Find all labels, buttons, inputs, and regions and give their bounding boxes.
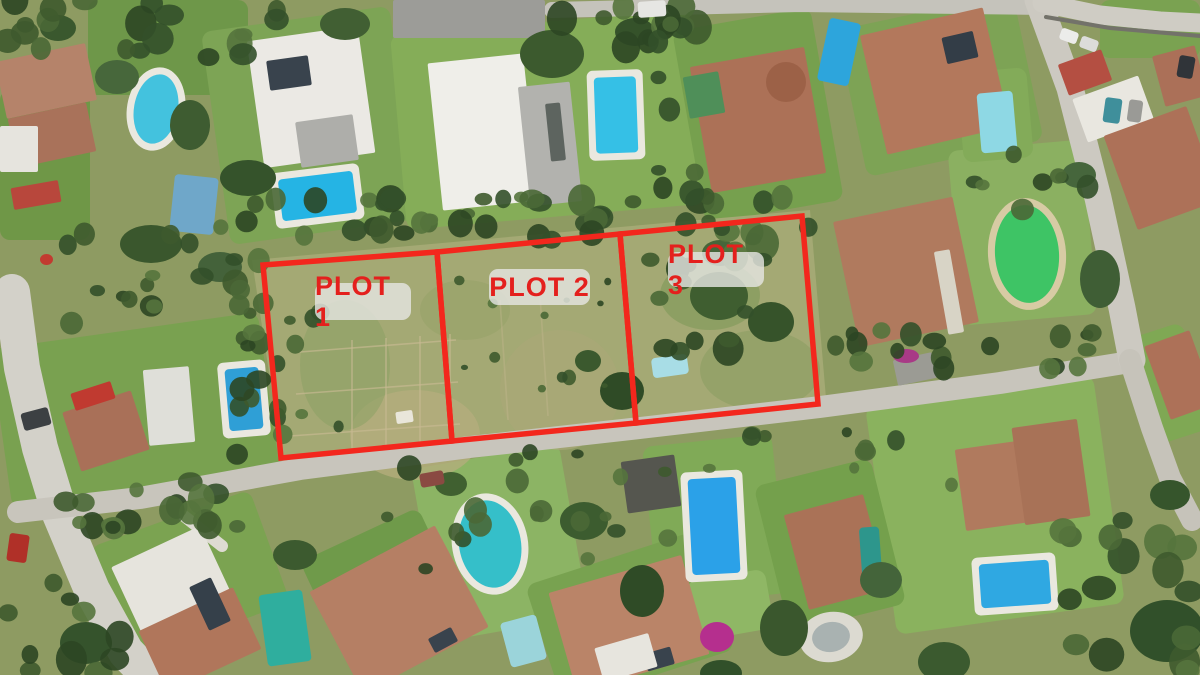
shrub <box>579 220 604 246</box>
shrub <box>234 28 252 41</box>
shrub <box>295 409 308 419</box>
shrub <box>1082 324 1101 342</box>
car <box>1102 97 1122 124</box>
shrub <box>264 9 289 30</box>
shrub <box>461 365 468 370</box>
shrub <box>360 192 378 207</box>
shrub <box>771 185 792 210</box>
shrub <box>161 225 180 244</box>
shrub <box>72 602 96 622</box>
shrub <box>381 512 393 523</box>
shrub <box>604 278 611 286</box>
tree <box>760 600 808 656</box>
villa-roof <box>428 53 539 210</box>
shrub <box>538 385 546 393</box>
villa-roof <box>295 114 359 168</box>
shrub <box>31 37 51 60</box>
tree <box>700 622 734 652</box>
car <box>6 533 30 564</box>
shrub <box>247 195 264 213</box>
shrub <box>1006 146 1022 163</box>
shrub <box>1063 634 1089 655</box>
shrub <box>229 520 245 533</box>
shrub <box>266 188 286 211</box>
shrub <box>1113 512 1133 529</box>
shrub <box>1172 625 1200 650</box>
shrub <box>117 39 135 59</box>
shrub <box>612 31 640 63</box>
swimming-pool <box>594 76 639 153</box>
shrub <box>650 291 668 306</box>
shrub <box>464 497 487 524</box>
shrub <box>679 180 704 206</box>
shrub <box>1033 173 1053 190</box>
shrub <box>887 430 905 450</box>
shrub <box>146 299 162 313</box>
tree <box>1150 480 1190 510</box>
shrub <box>703 464 716 473</box>
scrub-patch <box>420 280 510 340</box>
shrub <box>190 268 213 285</box>
shrub <box>625 195 642 208</box>
shrub <box>333 421 343 433</box>
shrub <box>849 351 873 371</box>
shrub <box>488 299 498 309</box>
shrub <box>607 524 626 538</box>
shrub <box>679 258 696 273</box>
shrub <box>142 23 174 55</box>
shrub <box>100 648 129 671</box>
shrub <box>580 552 594 565</box>
shrub <box>658 467 672 477</box>
shrub <box>22 645 39 664</box>
shrub <box>933 356 954 381</box>
swimming-pool <box>976 91 1017 154</box>
shrub <box>90 285 105 296</box>
tree <box>1080 250 1120 308</box>
shrub <box>225 253 243 266</box>
shrub <box>722 241 748 271</box>
shrub <box>475 193 493 206</box>
shrub <box>662 17 678 32</box>
satellite-aerial-view: PLOT 1PLOT 2PLOT 3 <box>0 0 1200 675</box>
tree <box>600 372 644 410</box>
shrub <box>475 214 498 238</box>
shrub <box>105 521 120 534</box>
shrub <box>890 343 904 359</box>
shrub <box>1050 168 1067 183</box>
shrub <box>1050 324 1071 348</box>
villa-roof <box>266 55 312 91</box>
shrub <box>641 253 659 267</box>
shrub <box>418 563 433 574</box>
shrub <box>1011 199 1034 221</box>
tree <box>220 160 276 196</box>
shrub <box>17 17 35 33</box>
shrub <box>753 190 774 213</box>
shrub <box>145 270 160 281</box>
shrub <box>72 516 86 529</box>
shrub <box>44 574 62 592</box>
shrub <box>495 190 511 208</box>
shrub <box>229 377 254 401</box>
tree <box>170 100 210 150</box>
swimming-pool <box>688 477 741 575</box>
villa-roof <box>621 454 682 513</box>
tree <box>520 30 584 78</box>
shrub <box>595 10 612 25</box>
tree <box>748 302 794 342</box>
shrub <box>59 234 77 255</box>
shrub <box>1039 358 1060 379</box>
shrub <box>369 215 393 243</box>
villa-roof <box>1012 419 1091 525</box>
shrub <box>648 30 668 54</box>
shrub <box>159 496 185 525</box>
shrub <box>506 468 529 493</box>
shrub <box>448 210 473 238</box>
shrub <box>571 511 590 532</box>
shrub <box>1099 525 1123 551</box>
shrub <box>540 312 548 319</box>
shrub <box>74 223 95 246</box>
shrub <box>651 165 666 176</box>
shrub <box>599 512 611 522</box>
shrub <box>342 219 367 241</box>
shrub <box>380 188 406 209</box>
shrub <box>1078 343 1097 356</box>
villa-roof <box>0 126 38 172</box>
villa-roof <box>690 47 826 193</box>
shrub <box>121 291 138 308</box>
shrub <box>530 506 544 522</box>
shrub <box>454 276 465 286</box>
shrub <box>981 337 999 355</box>
shrub <box>519 190 544 209</box>
shrub <box>975 179 989 190</box>
shrub <box>564 297 570 302</box>
tree <box>95 60 139 94</box>
shrub <box>106 621 134 653</box>
shrub <box>1082 576 1116 600</box>
shrub <box>248 248 270 273</box>
shrub <box>304 187 328 213</box>
shrub <box>742 427 761 446</box>
shrub <box>1089 638 1124 672</box>
tree <box>40 254 53 265</box>
shrub <box>601 383 608 388</box>
shrub <box>284 316 296 325</box>
shrub <box>1077 175 1099 199</box>
villa-roof <box>395 410 414 424</box>
villa-roof <box>683 71 726 119</box>
shrub <box>522 444 538 460</box>
shrub <box>286 335 304 354</box>
shrub <box>849 462 859 473</box>
tree <box>273 540 317 570</box>
shrub <box>448 523 464 542</box>
shrub <box>557 372 568 383</box>
shrub <box>857 439 875 459</box>
villa-roof <box>393 0 545 38</box>
shrub <box>945 478 958 492</box>
shrub <box>718 332 739 347</box>
shrub <box>922 333 946 350</box>
shrub <box>213 219 228 234</box>
tree <box>620 565 664 617</box>
car <box>637 0 666 18</box>
shrub <box>686 164 704 182</box>
shrub <box>235 211 257 233</box>
shrub <box>226 444 248 465</box>
shrub <box>393 225 414 240</box>
shrub <box>547 1 577 36</box>
shrub <box>658 529 677 546</box>
shrub <box>508 453 523 467</box>
shrub <box>653 177 672 200</box>
shrub <box>397 455 422 480</box>
tree <box>575 350 601 372</box>
shrub <box>243 324 265 341</box>
shrub <box>295 225 313 245</box>
shrub <box>651 71 667 84</box>
villa-roof <box>766 62 806 102</box>
shrub <box>737 305 754 319</box>
shrub <box>827 335 844 355</box>
shrub <box>659 97 680 121</box>
shrub <box>229 43 257 65</box>
tree <box>860 562 902 598</box>
shrub <box>180 233 198 253</box>
shrub <box>872 322 890 339</box>
shrub <box>1058 588 1082 610</box>
shrub <box>900 322 922 346</box>
shrub <box>129 482 143 497</box>
shrub <box>198 48 220 66</box>
villa-roof <box>143 366 195 446</box>
shrub <box>411 211 432 234</box>
shrub <box>197 511 222 539</box>
shrub <box>653 339 677 357</box>
shrub <box>597 301 604 307</box>
shrub <box>1049 518 1076 544</box>
shrub <box>53 491 78 511</box>
shrub <box>1152 552 1183 588</box>
shrub <box>304 309 322 328</box>
shrub <box>1069 357 1087 377</box>
swimming-pool <box>979 560 1052 609</box>
swimming-pool <box>169 174 219 235</box>
shrub <box>672 274 692 289</box>
shrub <box>753 253 772 267</box>
shrub <box>60 312 83 335</box>
shrub <box>571 449 583 458</box>
shrub <box>240 340 255 352</box>
shrub <box>842 427 852 437</box>
shrub <box>613 468 628 485</box>
shrub <box>489 352 500 363</box>
tree <box>320 8 370 40</box>
scene-canvas <box>0 0 1200 675</box>
shrub <box>230 280 250 300</box>
